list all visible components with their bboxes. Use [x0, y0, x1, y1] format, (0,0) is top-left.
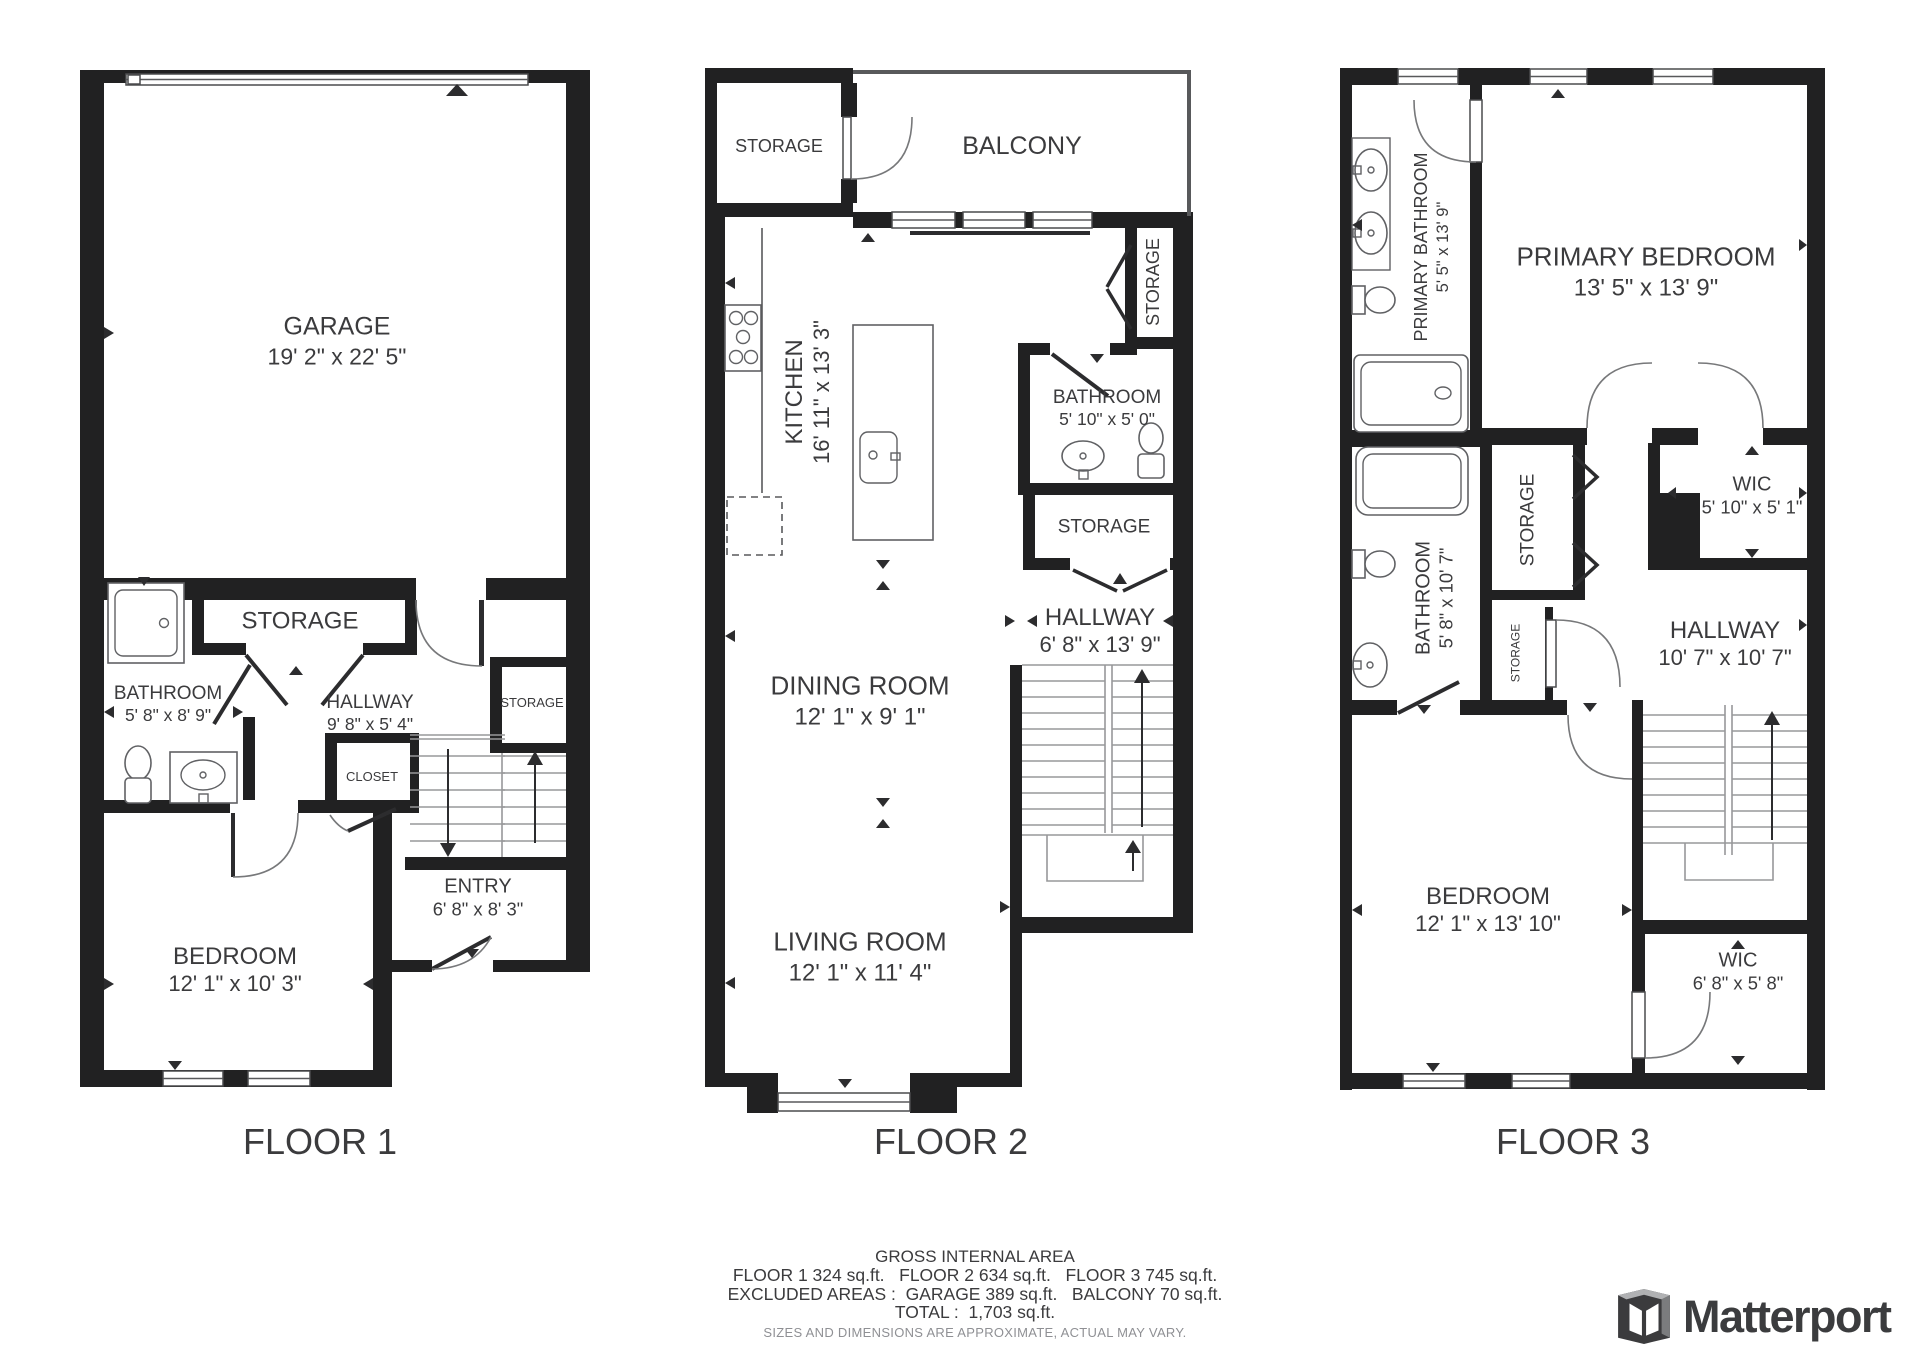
floor3-caption: FLOOR 3	[1496, 1121, 1650, 1163]
room-label-wic-top: WIC 5' 10" x 5' 1"	[1702, 473, 1803, 520]
toilet-fixture	[1352, 550, 1395, 578]
shower-fixture	[108, 577, 184, 663]
room-label-closet: CLOSET	[346, 769, 398, 785]
floor1-plan-drawing	[80, 65, 595, 1105]
floor1-plan: GARAGE 19' 2" x 22' 5" STORAGE BATHROOM …	[80, 65, 595, 1105]
area-summary-title: GROSS INTERNAL AREA	[0, 1247, 1920, 1266]
floor-areas-line: FLOOR 1 324 sq.ft. FLOOR 2 634 sq.ft. FL…	[0, 1266, 1920, 1285]
dishwasher-dashed-box	[727, 497, 782, 555]
room-label-living: LIVING ROOM 12' 1" x 11' 4"	[773, 927, 946, 988]
floor1-caption: FLOOR 1	[243, 1121, 397, 1163]
toilet-fixture	[1138, 423, 1164, 478]
room-label-bathroom: BATHROOM 5' 8" x 10' 7"	[1412, 541, 1459, 655]
room-label-balcony: BALCONY	[962, 131, 1081, 162]
room-label-primary-bedroom: PRIMARY BEDROOM 13' 5" x 13' 9"	[1516, 242, 1775, 303]
room-label-bathroom: BATHROOM 5' 8" x 8' 9"	[114, 682, 222, 727]
room-label-storage-mid: STORAGE	[1058, 515, 1151, 538]
floor3-plan: PRIMARY BATHROOM 5' 5" x 13' 9" PRIMARY …	[1340, 65, 1875, 1105]
stairs-down	[410, 735, 566, 857]
floor2-plan: STORAGE BALCONY KITCHEN 16' 11" x 13' 3"…	[705, 65, 1235, 1125]
toilet-fixture	[1352, 286, 1395, 314]
stairs-up	[1643, 705, 1807, 880]
room-label-storage-right: STORAGE	[1143, 238, 1165, 326]
room-name: GARAGE	[268, 312, 407, 343]
room-label-storage-small: STORAGE	[1509, 624, 1524, 682]
floorplan-page: GARAGE 19' 2" x 22' 5" STORAGE BATHROOM …	[0, 0, 1920, 1358]
vanity-sinks-fixture	[1352, 138, 1390, 270]
matterport-logo-icon	[1618, 1288, 1670, 1345]
room-label-bathroom: BATHROOM 5' 10" x 5' 0"	[1053, 386, 1161, 431]
room-label-hallway: HALLWAY 9' 8" x 5' 4"	[326, 691, 413, 736]
bathtub-fixture	[1356, 447, 1468, 515]
room-label-dining: DINING ROOM 12' 1" x 9' 1"	[770, 671, 949, 732]
room-label-entry: ENTRY 6' 8" x 8' 3"	[433, 875, 524, 922]
matterport-logo: Matterport	[1618, 1288, 1891, 1345]
kitchen-island	[853, 325, 933, 540]
room-label-kitchen: KITCHEN 16' 11" x 13' 3"	[780, 320, 836, 464]
balcony-door	[843, 117, 851, 179]
matterport-logo-text: Matterport	[1683, 1291, 1891, 1343]
stove-fixture	[725, 305, 761, 371]
shower-fixture	[1354, 355, 1468, 432]
room-dims: 19' 2" x 22' 5"	[268, 342, 407, 370]
room-label-storage-big: STORAGE	[1516, 474, 1539, 567]
sink-fixture	[1062, 441, 1104, 479]
room-label-storage: STORAGE	[242, 606, 359, 635]
room-label-hallway: HALLWAY 6' 8" x 13' 9"	[1039, 603, 1160, 659]
sink-fixture	[170, 752, 237, 803]
floor2-caption: FLOOR 2	[874, 1121, 1028, 1163]
room-label-storage-small: STORAGE	[500, 695, 563, 711]
sink-fixture	[1353, 643, 1387, 687]
room-label-bedroom: BEDROOM 12' 1" x 13' 10"	[1415, 882, 1561, 938]
room-label-storage-top: STORAGE	[735, 136, 823, 158]
room-label-wic-bottom: WIC 6' 8" x 5' 8"	[1693, 949, 1784, 996]
room-label-primary-bathroom: PRIMARY BATHROOM 5' 5" x 13' 9"	[1411, 152, 1453, 341]
room-label-garage: GARAGE 19' 2" x 22' 5"	[268, 312, 407, 371]
stairs-up	[1022, 665, 1173, 881]
room-label-bedroom: BEDROOM 12' 1" x 10' 3"	[168, 942, 301, 998]
room-label-hallway: HALLWAY 10' 7" x 10' 7"	[1658, 616, 1791, 672]
toilet-fixture	[125, 746, 151, 803]
